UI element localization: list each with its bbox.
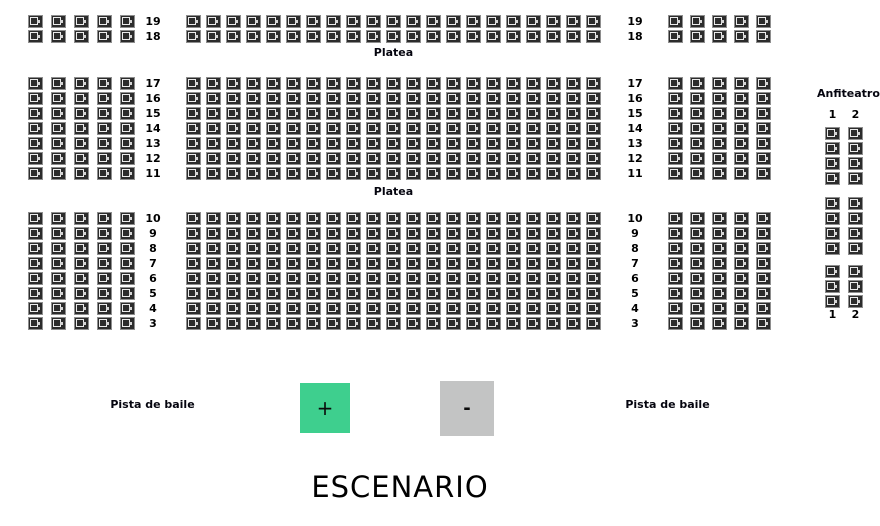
seat[interactable] [825,280,840,293]
seat[interactable] [326,272,341,285]
seat[interactable] [306,287,321,300]
seat[interactable] [386,287,401,300]
seat[interactable] [668,227,683,240]
seat[interactable] [97,152,112,165]
seat[interactable] [690,257,705,270]
seat[interactable] [426,107,441,120]
seat[interactable] [51,212,66,225]
seat[interactable] [546,107,561,120]
seat[interactable] [546,242,561,255]
seat[interactable] [386,212,401,225]
seat[interactable] [586,77,601,90]
seat[interactable] [346,30,361,43]
seat[interactable] [206,272,221,285]
seat[interactable] [306,152,321,165]
seat[interactable] [825,265,840,278]
seat[interactable] [120,257,135,270]
seat[interactable] [426,77,441,90]
seat[interactable] [586,242,601,255]
seat[interactable] [346,317,361,330]
seat[interactable] [246,107,261,120]
seat[interactable] [74,152,89,165]
seat[interactable] [206,212,221,225]
seat[interactable] [825,127,840,140]
seat[interactable] [734,317,749,330]
seat[interactable] [206,30,221,43]
seat[interactable] [346,227,361,240]
seat[interactable] [28,317,43,330]
seat[interactable] [546,77,561,90]
seat[interactable] [734,107,749,120]
seat[interactable] [506,257,521,270]
seat[interactable] [366,137,381,150]
seat[interactable] [734,227,749,240]
seat[interactable] [306,302,321,315]
seat[interactable] [74,15,89,28]
seat[interactable] [97,302,112,315]
seat[interactable] [734,30,749,43]
seat[interactable] [97,15,112,28]
seat[interactable] [206,77,221,90]
seat[interactable] [506,227,521,240]
seat[interactable] [466,227,481,240]
seat[interactable] [366,122,381,135]
seat[interactable] [712,77,727,90]
seat[interactable] [756,287,771,300]
seat[interactable] [366,272,381,285]
seat[interactable] [446,212,461,225]
seat[interactable] [28,152,43,165]
seat[interactable] [326,122,341,135]
seat[interactable] [186,122,201,135]
seat[interactable] [326,287,341,300]
seat[interactable] [366,167,381,180]
seat[interactable] [526,302,541,315]
seat[interactable] [546,15,561,28]
seat[interactable] [668,77,683,90]
seat[interactable] [226,92,241,105]
seat[interactable] [386,122,401,135]
seat[interactable] [446,152,461,165]
seat[interactable] [246,287,261,300]
seat[interactable] [486,122,501,135]
seat[interactable] [486,30,501,43]
seat[interactable] [28,287,43,300]
seat[interactable] [690,302,705,315]
seat[interactable] [326,92,341,105]
seat[interactable] [756,92,771,105]
seat[interactable] [426,257,441,270]
seat[interactable] [120,15,135,28]
seat[interactable] [266,242,281,255]
seat[interactable] [28,122,43,135]
seat[interactable] [426,287,441,300]
seat[interactable] [734,122,749,135]
seat[interactable] [266,122,281,135]
seat[interactable] [848,142,863,155]
seat[interactable] [326,212,341,225]
seat[interactable] [246,152,261,165]
seat[interactable] [186,30,201,43]
seat[interactable] [406,317,421,330]
seat[interactable] [120,107,135,120]
seat[interactable] [406,227,421,240]
seat[interactable] [712,242,727,255]
seat[interactable] [51,15,66,28]
seat[interactable] [668,212,683,225]
seat[interactable] [506,242,521,255]
seat[interactable] [386,272,401,285]
seat[interactable] [206,287,221,300]
seat[interactable] [756,212,771,225]
seat[interactable] [97,317,112,330]
seat[interactable] [186,77,201,90]
seat[interactable] [406,122,421,135]
seat[interactable] [734,257,749,270]
seat[interactable] [756,15,771,28]
seat[interactable] [286,317,301,330]
seat[interactable] [246,257,261,270]
seat[interactable] [266,272,281,285]
seat[interactable] [326,15,341,28]
seat[interactable] [586,227,601,240]
seat[interactable] [426,317,441,330]
seat[interactable] [466,287,481,300]
seat[interactable] [712,302,727,315]
seat[interactable] [690,212,705,225]
seat[interactable] [466,317,481,330]
seat[interactable] [526,272,541,285]
seat[interactable] [74,30,89,43]
seat[interactable] [406,92,421,105]
seat[interactable] [825,212,840,225]
seat[interactable] [266,317,281,330]
seat[interactable] [97,122,112,135]
seat[interactable] [226,302,241,315]
seat[interactable] [406,242,421,255]
seat[interactable] [51,272,66,285]
seat[interactable] [526,107,541,120]
seat[interactable] [226,242,241,255]
seat[interactable] [848,280,863,293]
seat[interactable] [486,15,501,28]
seat[interactable] [426,212,441,225]
seat[interactable] [712,257,727,270]
seat[interactable] [306,122,321,135]
seat[interactable] [712,30,727,43]
seat[interactable] [97,287,112,300]
seat[interactable] [326,77,341,90]
seat[interactable] [286,167,301,180]
seat[interactable] [690,15,705,28]
seat[interactable] [286,30,301,43]
seat[interactable] [346,77,361,90]
seat[interactable] [226,30,241,43]
seat[interactable] [446,15,461,28]
seat[interactable] [28,212,43,225]
seat[interactable] [246,302,261,315]
seat[interactable] [226,77,241,90]
seat[interactable] [406,107,421,120]
seat[interactable] [526,227,541,240]
seat[interactable] [226,272,241,285]
seat[interactable] [526,317,541,330]
seat[interactable] [756,137,771,150]
seat[interactable] [51,302,66,315]
seat[interactable] [586,30,601,43]
seat[interactable] [386,15,401,28]
seat[interactable] [466,15,481,28]
seat[interactable] [426,92,441,105]
seat[interactable] [712,317,727,330]
seat[interactable] [326,257,341,270]
seat[interactable] [266,257,281,270]
seat[interactable] [186,152,201,165]
seat[interactable] [120,227,135,240]
seat[interactable] [586,107,601,120]
seat[interactable] [566,137,581,150]
seat[interactable] [546,317,561,330]
seat[interactable] [566,317,581,330]
seat[interactable] [406,77,421,90]
seat[interactable] [566,242,581,255]
seat[interactable] [446,317,461,330]
seat[interactable] [586,272,601,285]
seat[interactable] [206,302,221,315]
seat[interactable] [246,212,261,225]
seat[interactable] [386,302,401,315]
seat[interactable] [466,30,481,43]
seat[interactable] [486,92,501,105]
seat[interactable] [756,302,771,315]
seat[interactable] [466,137,481,150]
seat[interactable] [446,257,461,270]
seat[interactable] [712,212,727,225]
seat[interactable] [346,122,361,135]
seat[interactable] [506,15,521,28]
seat[interactable] [366,152,381,165]
seat[interactable] [226,15,241,28]
seat[interactable] [566,15,581,28]
seat[interactable] [446,30,461,43]
seat[interactable] [486,152,501,165]
seat[interactable] [756,272,771,285]
seat[interactable] [586,257,601,270]
seat[interactable] [366,15,381,28]
seat[interactable] [406,30,421,43]
seat[interactable] [566,257,581,270]
seat[interactable] [366,227,381,240]
seat[interactable] [120,30,135,43]
seat[interactable] [668,317,683,330]
seat[interactable] [186,272,201,285]
seat[interactable] [668,15,683,28]
seat[interactable] [97,92,112,105]
seat[interactable] [668,302,683,315]
seat[interactable] [446,77,461,90]
seat[interactable] [226,137,241,150]
seat[interactable] [74,122,89,135]
seat[interactable] [246,30,261,43]
seat[interactable] [97,30,112,43]
seat[interactable] [206,137,221,150]
seat[interactable] [246,272,261,285]
seat[interactable] [486,287,501,300]
seat[interactable] [120,92,135,105]
seat[interactable] [206,317,221,330]
seat[interactable] [756,167,771,180]
seat[interactable] [690,272,705,285]
seat[interactable] [206,152,221,165]
seat[interactable] [506,30,521,43]
seat[interactable] [406,212,421,225]
seat[interactable] [486,302,501,315]
seat[interactable] [74,212,89,225]
seat[interactable] [51,77,66,90]
seat[interactable] [546,257,561,270]
seat[interactable] [206,242,221,255]
seat[interactable] [326,302,341,315]
seat[interactable] [226,227,241,240]
seat[interactable] [506,152,521,165]
seat[interactable] [386,152,401,165]
seat[interactable] [386,30,401,43]
seat[interactable] [366,302,381,315]
seat[interactable] [286,107,301,120]
seat[interactable] [51,242,66,255]
seat[interactable] [406,152,421,165]
seat[interactable] [120,272,135,285]
seat[interactable] [306,272,321,285]
seat[interactable] [586,212,601,225]
seat[interactable] [186,317,201,330]
seat[interactable] [206,122,221,135]
seat[interactable] [306,137,321,150]
seat[interactable] [74,77,89,90]
seat[interactable] [386,92,401,105]
seat[interactable] [97,227,112,240]
seat[interactable] [586,15,601,28]
seat[interactable] [226,152,241,165]
seat[interactable] [346,212,361,225]
seat[interactable] [586,302,601,315]
seat[interactable] [386,227,401,240]
seat[interactable] [386,317,401,330]
seat[interactable] [668,257,683,270]
seat[interactable] [712,227,727,240]
seat[interactable] [566,152,581,165]
seat[interactable] [668,272,683,285]
seat[interactable] [566,122,581,135]
seat[interactable] [366,257,381,270]
seat[interactable] [466,107,481,120]
seat[interactable] [546,167,561,180]
seat[interactable] [466,92,481,105]
seat[interactable] [186,257,201,270]
seat[interactable] [546,137,561,150]
seat[interactable] [756,242,771,255]
seat[interactable] [226,257,241,270]
seat[interactable] [306,317,321,330]
seat[interactable] [526,167,541,180]
seat[interactable] [566,77,581,90]
seat[interactable] [186,15,201,28]
seat[interactable] [734,137,749,150]
seat[interactable] [506,107,521,120]
seat[interactable] [74,167,89,180]
seat[interactable] [406,287,421,300]
seat[interactable] [546,30,561,43]
seat[interactable] [386,77,401,90]
seat[interactable] [466,122,481,135]
seat[interactable] [566,272,581,285]
seat[interactable] [226,167,241,180]
seat[interactable] [526,30,541,43]
seat[interactable] [326,107,341,120]
seat[interactable] [712,15,727,28]
seat[interactable] [712,152,727,165]
seat[interactable] [848,127,863,140]
seat[interactable] [306,107,321,120]
seat[interactable] [386,257,401,270]
seat[interactable] [186,137,201,150]
seat[interactable] [51,122,66,135]
seat[interactable] [97,212,112,225]
seat[interactable] [74,227,89,240]
seat[interactable] [406,167,421,180]
seat[interactable] [306,167,321,180]
seat[interactable] [526,77,541,90]
seat[interactable] [346,152,361,165]
seat[interactable] [756,30,771,43]
seat[interactable] [734,152,749,165]
seat[interactable] [51,30,66,43]
seat[interactable] [756,122,771,135]
seat[interactable] [386,167,401,180]
seat[interactable] [51,257,66,270]
seat[interactable] [120,167,135,180]
seat[interactable] [446,92,461,105]
seat[interactable] [756,227,771,240]
seat[interactable] [366,242,381,255]
seat[interactable] [825,242,840,255]
seat[interactable] [97,167,112,180]
seat[interactable] [734,212,749,225]
seat[interactable] [734,302,749,315]
seat[interactable] [526,15,541,28]
seat[interactable] [306,15,321,28]
seat[interactable] [526,287,541,300]
seat[interactable] [120,242,135,255]
seat[interactable] [346,107,361,120]
seat[interactable] [586,167,601,180]
seat[interactable] [246,137,261,150]
seat[interactable] [28,242,43,255]
seat[interactable] [366,212,381,225]
seat[interactable] [246,92,261,105]
seat[interactable] [346,272,361,285]
seat[interactable] [286,257,301,270]
seat[interactable] [28,15,43,28]
seat[interactable] [326,167,341,180]
seat[interactable] [825,197,840,210]
seat[interactable] [690,152,705,165]
seat[interactable] [848,172,863,185]
seat[interactable] [28,167,43,180]
seat[interactable] [690,92,705,105]
seat[interactable] [246,167,261,180]
seat[interactable] [246,77,261,90]
